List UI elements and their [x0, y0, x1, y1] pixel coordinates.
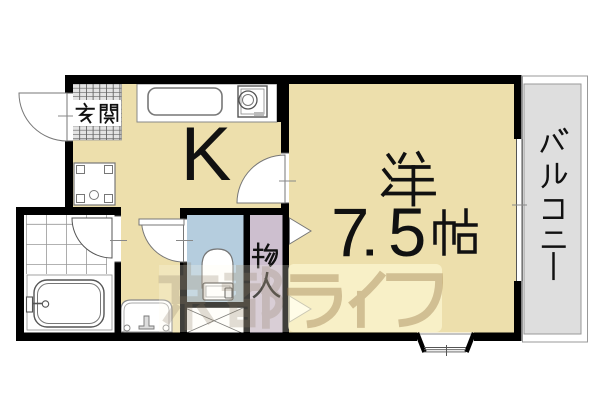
svg-text:5: 5 — [388, 194, 426, 271]
svg-text:7: 7 — [331, 194, 369, 271]
svg-text:K: K — [181, 112, 232, 197]
